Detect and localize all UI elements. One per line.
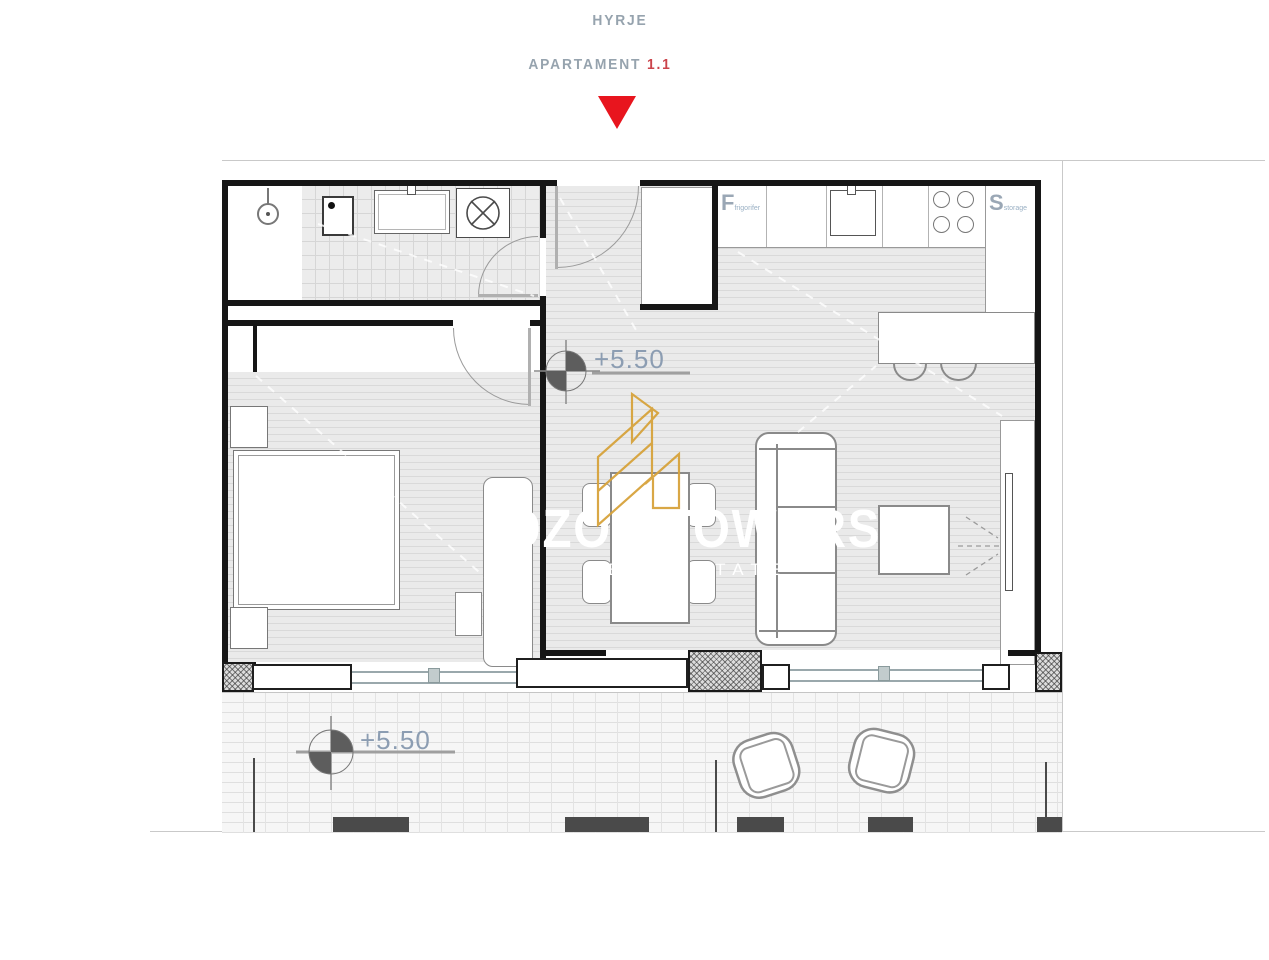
wall xyxy=(540,326,546,668)
counter-divider xyxy=(928,186,929,247)
coffee-table xyxy=(878,505,950,575)
bedroom-drawer xyxy=(455,592,482,636)
balcony-door-panel xyxy=(516,658,688,688)
wall xyxy=(222,320,453,326)
wall xyxy=(530,320,546,326)
toilet-icon xyxy=(322,196,354,236)
elevation-label: +5.50 xyxy=(360,725,431,756)
tv-icon xyxy=(1005,473,1013,591)
sink-icon xyxy=(830,190,876,236)
counter-divider xyxy=(766,186,767,247)
window-frame xyxy=(252,664,352,690)
fridge-label: Ffrigorifer xyxy=(721,192,760,214)
floor-plan-canvas: HYRJE APARTAMENT 1.1 Ffrigorifer Sstorag… xyxy=(0,0,1269,960)
window-mullion xyxy=(878,666,890,681)
entry-arrow-icon xyxy=(598,96,636,129)
wall xyxy=(640,180,1041,186)
railing-post xyxy=(1037,817,1062,832)
bathroom-door-leaf xyxy=(478,294,538,297)
window-frame xyxy=(982,664,1010,690)
wall xyxy=(1035,186,1041,692)
guide-line-top xyxy=(222,160,1265,161)
guide-line-right xyxy=(1062,160,1063,832)
railing-post xyxy=(737,817,784,832)
apartment-number: 1.1 xyxy=(647,56,672,73)
storage-label: Sstorage xyxy=(989,192,1027,214)
wall xyxy=(546,650,606,656)
watermark-brand: OZON TOWERS xyxy=(504,498,882,560)
nightstand xyxy=(230,406,268,448)
wall xyxy=(712,186,718,310)
kitchen-island xyxy=(878,312,1035,364)
railing-post xyxy=(868,817,913,832)
wall xyxy=(222,300,546,306)
entry-door-leaf xyxy=(555,186,558,269)
column-pier xyxy=(1035,652,1062,692)
window-frame xyxy=(762,664,790,690)
wardrobe-partition xyxy=(253,326,257,372)
shower-area xyxy=(228,186,303,300)
counter-divider xyxy=(826,186,827,247)
railing-post xyxy=(715,760,717,832)
elevation-label: +5.50 xyxy=(594,344,665,375)
counter-divider xyxy=(882,186,883,247)
balcony-floor xyxy=(222,692,1062,833)
wall xyxy=(222,180,557,186)
window-mullion xyxy=(428,668,440,683)
apartment-label-text: APARTAMENT xyxy=(528,56,641,73)
railing-post xyxy=(333,817,409,832)
washing-machine-icon xyxy=(456,188,510,238)
wall xyxy=(540,186,546,238)
wall xyxy=(640,304,718,310)
entrance-label: HYRJE xyxy=(546,12,693,29)
railing-post xyxy=(565,817,649,832)
bedroom-door-leaf xyxy=(528,328,531,406)
wall xyxy=(222,180,228,668)
entry-closet xyxy=(641,187,713,305)
column-pier xyxy=(222,662,254,692)
apartment-label: APARTAMENT 1.1 xyxy=(480,56,719,73)
nightstand xyxy=(230,607,268,649)
bed xyxy=(233,450,400,610)
watermark-tagline: REAL ESTATE xyxy=(588,560,788,580)
vanity-sink-icon xyxy=(374,190,450,234)
column-pier xyxy=(688,650,762,692)
railing-post xyxy=(253,758,255,832)
